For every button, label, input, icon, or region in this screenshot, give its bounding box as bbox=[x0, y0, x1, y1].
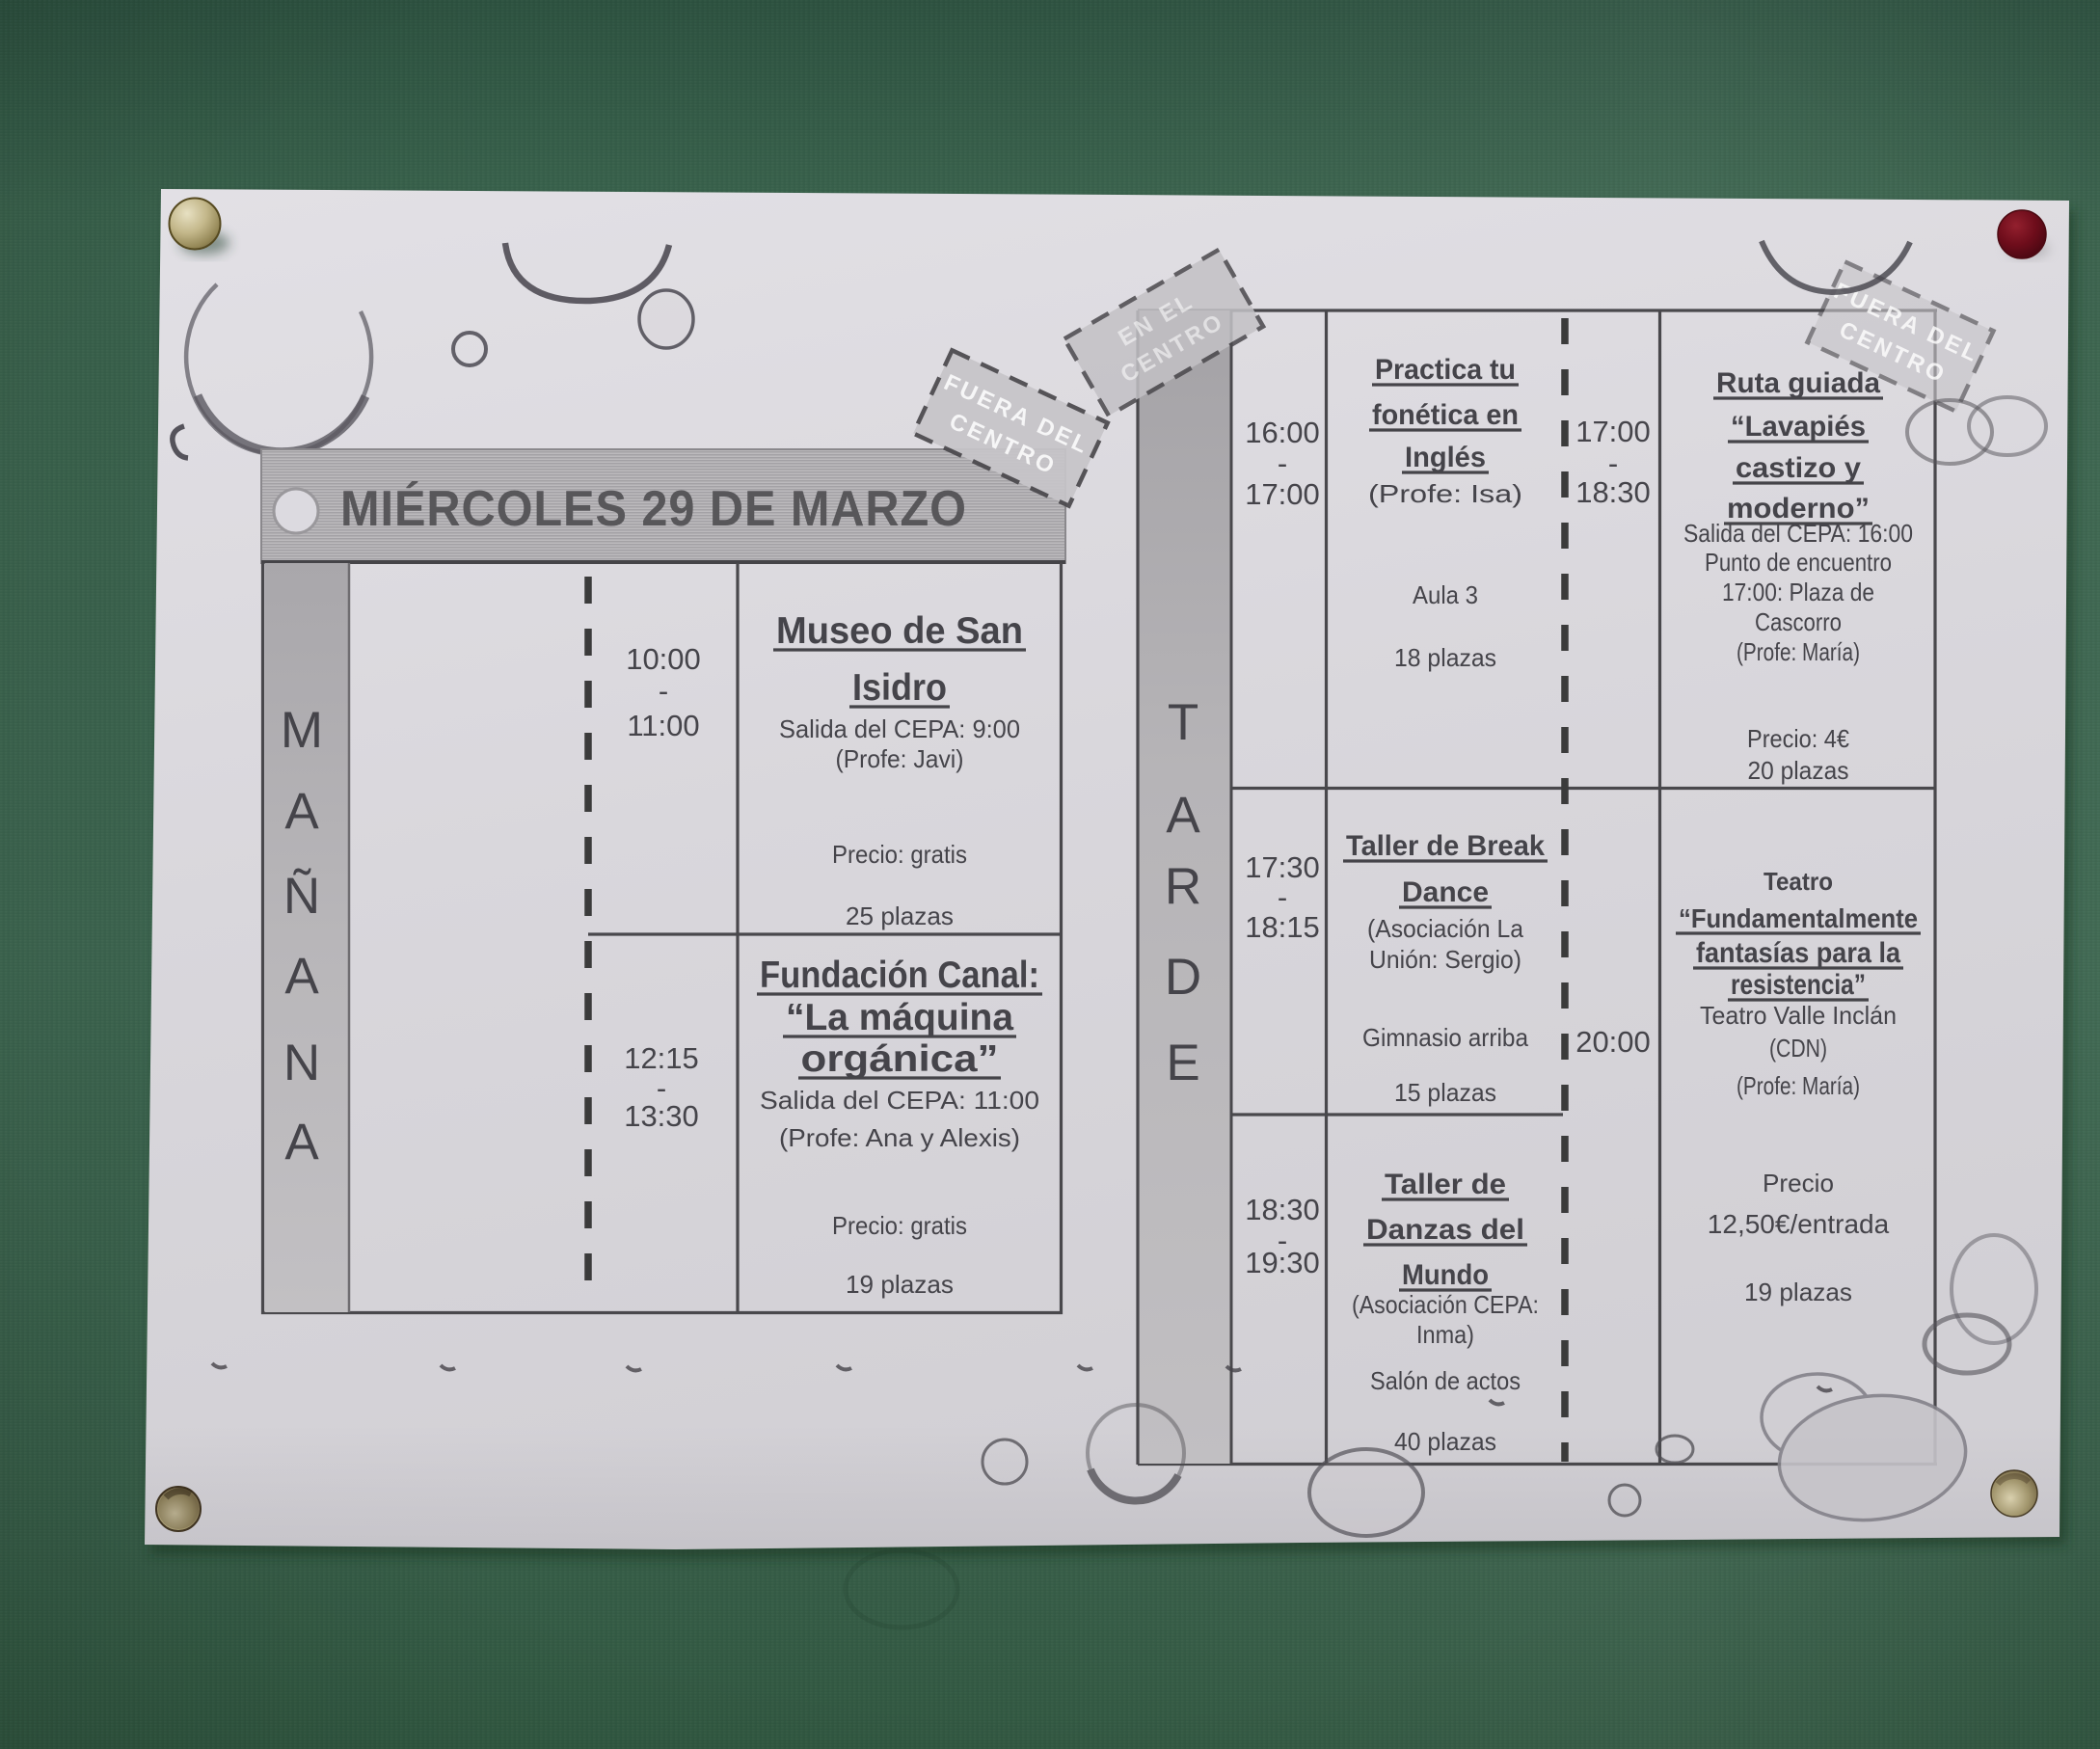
svg-text:resistencia”: resistencia” bbox=[1731, 969, 1866, 1001]
svg-text:Isidro: Isidro bbox=[852, 667, 947, 709]
svg-text:18:30: 18:30 bbox=[1245, 1193, 1320, 1226]
svg-text:“Fundamentalmente: “Fundamentalmente bbox=[1679, 903, 1918, 933]
svg-text:Ñ: Ñ bbox=[283, 868, 320, 925]
svg-text:Inglés: Inglés bbox=[1405, 442, 1486, 473]
svg-text:“Lavapiés: “Lavapiés bbox=[1731, 411, 1866, 443]
svg-text:A: A bbox=[284, 783, 319, 840]
svg-text:Salida del CEPA: 11:00: Salida del CEPA: 11:00 bbox=[760, 1086, 1039, 1115]
svg-text:Inma): Inma) bbox=[1416, 1320, 1474, 1349]
svg-text:fonética en: fonética en bbox=[1372, 399, 1519, 431]
svg-text:Fundación Canal:: Fundación Canal: bbox=[760, 955, 1039, 996]
svg-text:16:00: 16:00 bbox=[1245, 416, 1320, 449]
svg-text:Punto de encuentro: Punto de encuentro bbox=[1705, 548, 1892, 577]
svg-text:17:30: 17:30 bbox=[1245, 850, 1320, 884]
svg-text:Gimnasio arriba: Gimnasio arriba bbox=[1362, 1023, 1529, 1052]
svg-text:12:15: 12:15 bbox=[624, 1041, 699, 1075]
svg-text:-: - bbox=[659, 674, 668, 708]
svg-text:(Profe: Ana y Alexis): (Profe: Ana y Alexis) bbox=[779, 1123, 1020, 1152]
svg-text:(Profe: María): (Profe: María) bbox=[1737, 637, 1860, 666]
svg-text:(Profe: Isa): (Profe: Isa) bbox=[1368, 479, 1522, 508]
svg-text:19 plazas: 19 plazas bbox=[1744, 1278, 1852, 1306]
svg-text:15 plazas: 15 plazas bbox=[1394, 1078, 1496, 1107]
svg-text:18 plazas: 18 plazas bbox=[1394, 643, 1496, 672]
svg-text:19 plazas: 19 plazas bbox=[846, 1270, 954, 1299]
svg-text:A: A bbox=[284, 948, 319, 1005]
svg-text:Salón de actos: Salón de actos bbox=[1370, 1366, 1521, 1395]
svg-text:40 plazas: 40 plazas bbox=[1394, 1427, 1496, 1456]
svg-text:R: R bbox=[1165, 858, 1201, 915]
svg-text:MIÉRCOLES 29 DE MARZO: MIÉRCOLES 29 DE MARZO bbox=[340, 481, 967, 537]
svg-text:18:30: 18:30 bbox=[1575, 475, 1651, 509]
svg-text:Taller de: Taller de bbox=[1385, 1169, 1506, 1200]
svg-text:Teatro Valle Inclán: Teatro Valle Inclán bbox=[1700, 1001, 1897, 1030]
svg-text:Precio: gratis: Precio: gratis bbox=[832, 840, 967, 869]
svg-text:19:30: 19:30 bbox=[1245, 1246, 1320, 1279]
svg-text:20:00: 20:00 bbox=[1575, 1025, 1651, 1059]
svg-text:Precio: gratis: Precio: gratis bbox=[832, 1211, 967, 1240]
svg-text:A: A bbox=[1166, 787, 1200, 844]
svg-text:(CDN): (CDN) bbox=[1769, 1034, 1827, 1063]
svg-text:A: A bbox=[284, 1114, 319, 1170]
svg-text:Cascorro: Cascorro bbox=[1755, 607, 1842, 636]
svg-text:(Asociación CEPA:: (Asociación CEPA: bbox=[1352, 1290, 1539, 1319]
svg-text:Mundo: Mundo bbox=[1402, 1259, 1489, 1291]
svg-text:fantasías para la: fantasías para la bbox=[1696, 937, 1900, 969]
svg-text:Practica tu: Practica tu bbox=[1375, 354, 1516, 386]
svg-text:Salida del CEPA: 9:00: Salida del CEPA: 9:00 bbox=[779, 714, 1020, 743]
svg-text:20 plazas: 20 plazas bbox=[1748, 756, 1849, 785]
svg-text:-: - bbox=[1278, 880, 1287, 914]
svg-text:(Profe: Javi): (Profe: Javi) bbox=[836, 744, 964, 773]
svg-text:Teatro: Teatro bbox=[1763, 867, 1833, 896]
svg-text:D: D bbox=[1165, 949, 1201, 1006]
svg-text:N: N bbox=[283, 1035, 320, 1091]
svg-text:(Asociación La: (Asociación La bbox=[1367, 914, 1524, 943]
svg-text:orgánica”: orgánica” bbox=[801, 1038, 999, 1080]
svg-text:Precio: 4€: Precio: 4€ bbox=[1747, 724, 1849, 753]
svg-text:11:00: 11:00 bbox=[627, 709, 699, 742]
svg-text:Precio: Precio bbox=[1763, 1169, 1834, 1197]
svg-text:E: E bbox=[1166, 1035, 1199, 1091]
svg-text:Taller de Break: Taller de Break bbox=[1346, 830, 1545, 862]
svg-text:-: - bbox=[1278, 446, 1287, 480]
svg-text:Ruta guiada: Ruta guiada bbox=[1716, 367, 1880, 399]
svg-text:“La máquina: “La máquina bbox=[786, 997, 1013, 1038]
svg-text:Dance: Dance bbox=[1402, 876, 1489, 908]
svg-text:13:30: 13:30 bbox=[624, 1099, 699, 1133]
svg-text:(Profe: María): (Profe: María) bbox=[1737, 1071, 1860, 1100]
svg-text:17:00: Plaza de: 17:00: Plaza de bbox=[1722, 578, 1874, 606]
svg-text:10:00: 10:00 bbox=[626, 642, 701, 676]
svg-text:17:00: 17:00 bbox=[1575, 415, 1651, 448]
svg-text:17:00: 17:00 bbox=[1245, 477, 1320, 511]
svg-text:Museo de San: Museo de San bbox=[776, 610, 1023, 652]
svg-text:18:15: 18:15 bbox=[1245, 910, 1320, 944]
svg-text:T: T bbox=[1168, 694, 1198, 751]
svg-text:12,50€/entrada: 12,50€/entrada bbox=[1708, 1209, 1890, 1239]
svg-text:Aula 3: Aula 3 bbox=[1413, 580, 1478, 609]
svg-text:castizo y: castizo y bbox=[1736, 452, 1861, 484]
svg-text:M: M bbox=[281, 702, 323, 759]
svg-text:Unión: Sergio): Unión: Sergio) bbox=[1369, 945, 1521, 974]
svg-text:Danzas del: Danzas del bbox=[1366, 1214, 1524, 1246]
svg-text:25 plazas: 25 plazas bbox=[846, 901, 954, 930]
